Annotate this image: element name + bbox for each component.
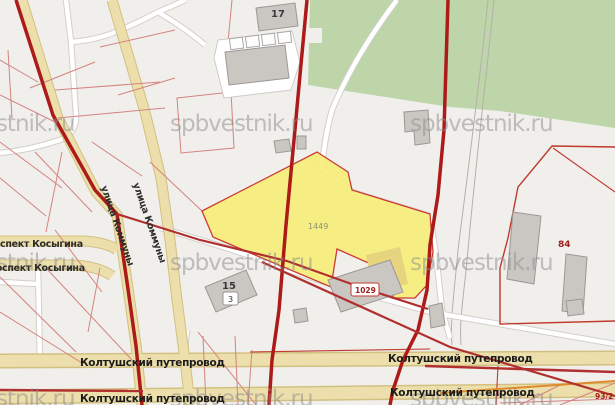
street-label-kosygina: проспект Косыгина xyxy=(0,239,83,250)
watermark: spbvestnik.ru xyxy=(170,111,313,137)
small-building-a xyxy=(274,139,291,153)
street-label-koltushsky: Колтушский путепровод xyxy=(390,387,535,399)
building-number-17: 17 xyxy=(271,9,285,20)
garage-main-building xyxy=(225,45,289,85)
street-label-koltushsky: Колтушский путепровод xyxy=(388,353,533,365)
street-label-kosygina: проспект Косыгина xyxy=(0,263,85,274)
parcel-number-1449: 1449 xyxy=(308,222,328,231)
parcel-number-93-2: 93/2 xyxy=(595,392,613,401)
address-plate-3: 3 xyxy=(223,292,238,305)
watermark: spbvestnik.ru xyxy=(0,111,75,137)
building-number-15: 15 xyxy=(222,281,236,292)
address-plate-1029-number: 1029 xyxy=(355,286,376,295)
watermark: spbvestnik.ru xyxy=(410,111,553,137)
street-label-koltushsky: Колтушский путепровод xyxy=(80,393,225,405)
street-label-koltushsky: Колтушский путепровод xyxy=(80,357,225,369)
small-building-d xyxy=(429,303,445,328)
small-building-e xyxy=(566,299,584,316)
parcel-number-84: 84 xyxy=(558,240,571,250)
watermark: spbvestnik.ru xyxy=(0,386,75,405)
watermark: spbvestnik.ru xyxy=(170,250,313,276)
watermark: spbvestnik.ru xyxy=(410,250,553,276)
small-building-b xyxy=(297,136,306,149)
address-plate-1029: 1029 xyxy=(351,283,379,296)
address-plate-3-number: 3 xyxy=(228,295,233,304)
map-canvas[interactable]: spbvestnik.ru spbvestnik.ru spbvestnik.r… xyxy=(0,0,615,405)
small-building-c xyxy=(293,308,308,323)
